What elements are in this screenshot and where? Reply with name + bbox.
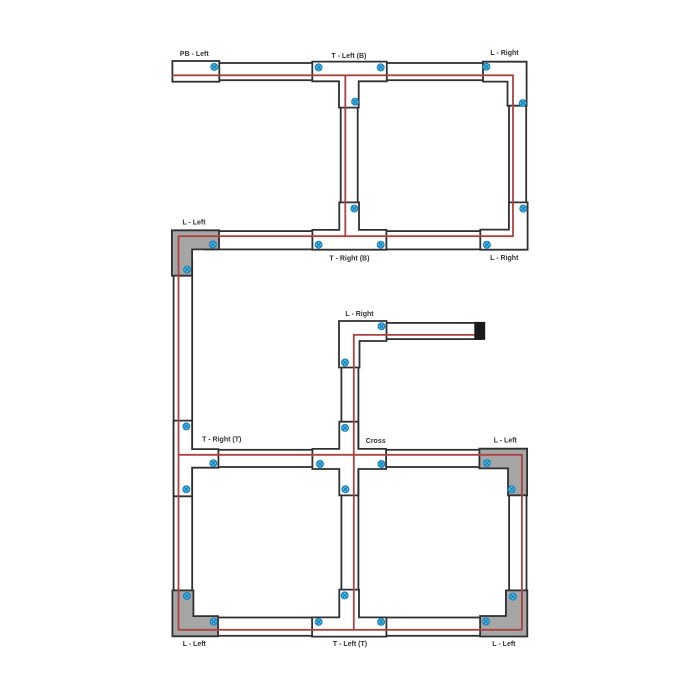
svg-text:PB - Left: PB - Left — [180, 51, 209, 58]
svg-text:L - Right: L - Right — [490, 255, 519, 262]
svg-text:L - Right: L - Right — [490, 50, 519, 57]
svg-text:T - Right (T): T - Right (T) — [202, 437, 241, 444]
svg-text:L - Left: L - Left — [183, 641, 207, 648]
svg-text:Cross: Cross — [366, 438, 386, 445]
svg-text:T - Left (B): T - Left (B) — [331, 53, 366, 60]
svg-text:T - Left (T): T - Left (T) — [333, 641, 367, 648]
svg-text:L - Left: L - Left — [494, 437, 518, 444]
svg-text:L - Left: L - Left — [182, 219, 206, 226]
svg-text:L - Right: L - Right — [345, 311, 374, 318]
svg-text:L - Left: L - Left — [492, 641, 516, 648]
svg-text:T - Right (B): T - Right (B) — [329, 255, 369, 262]
